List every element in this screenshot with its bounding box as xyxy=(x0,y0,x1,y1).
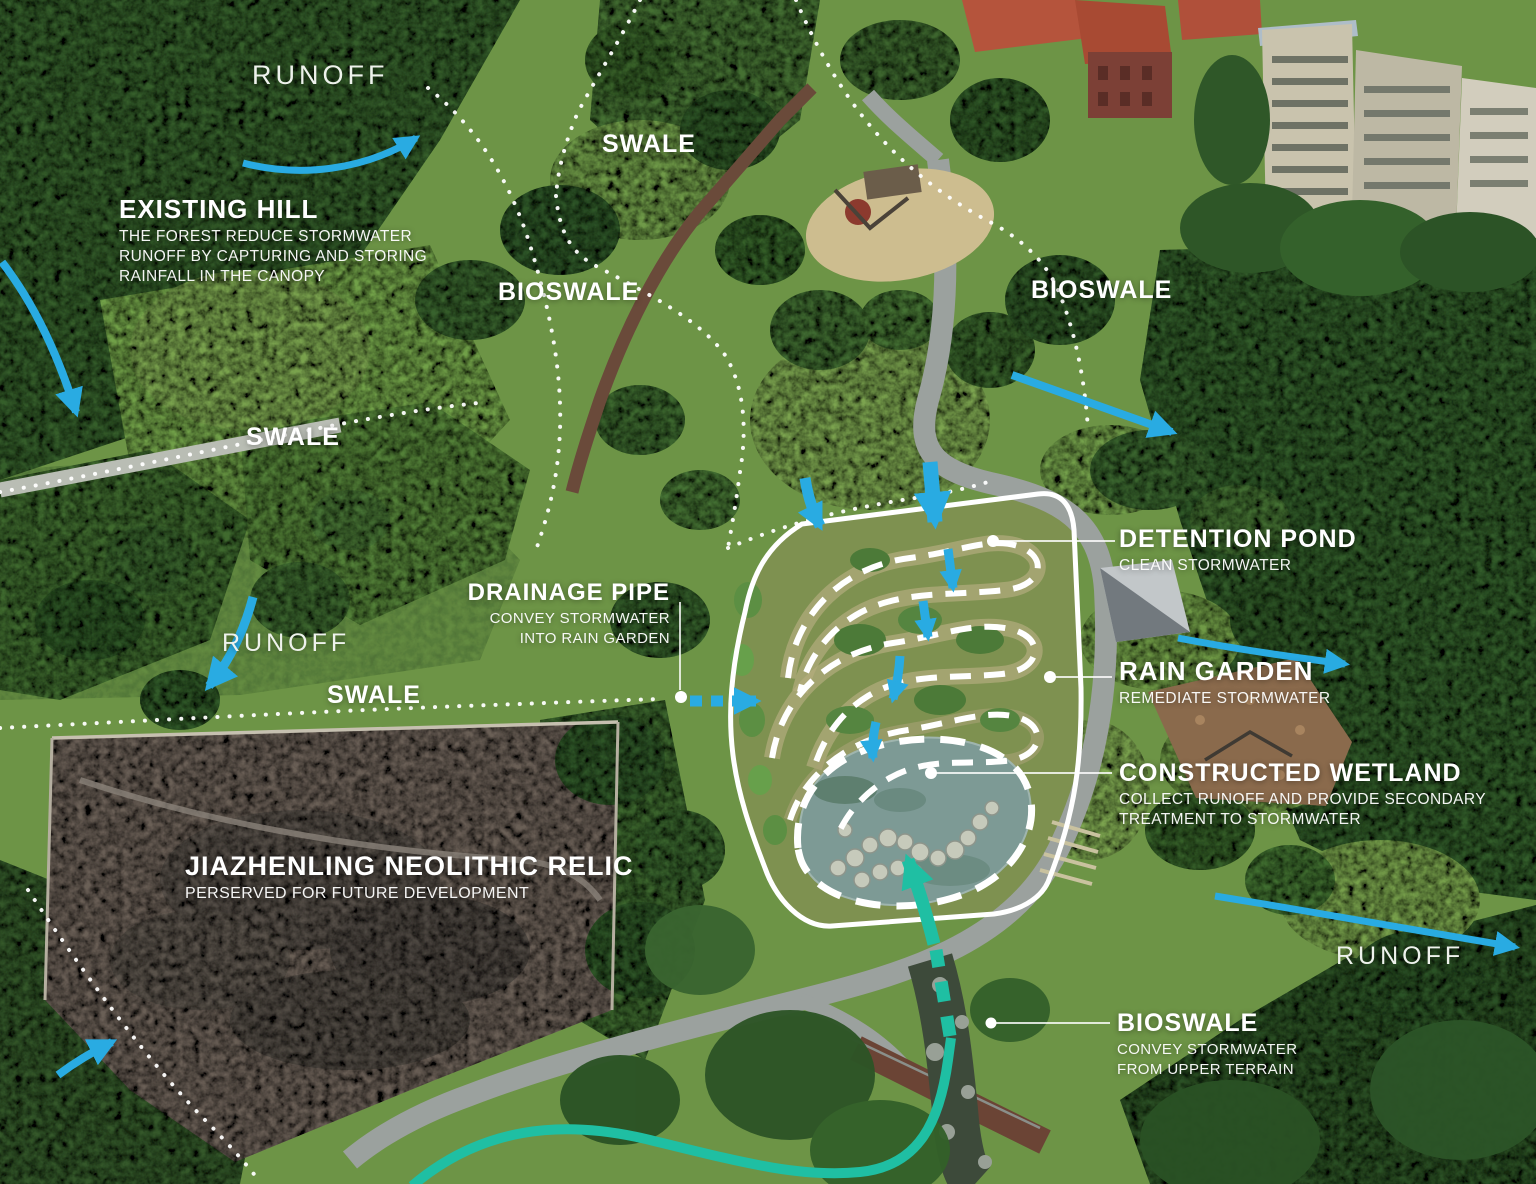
infiltration-arrow-5 xyxy=(893,656,900,699)
label-jiazhenling-relic: JIAZHENLING NEOLITHIC RELIC PERSERVED FO… xyxy=(185,852,634,904)
runoff-arrow-left-slope xyxy=(2,262,76,412)
label-rain-garden: RAIN GARDEN REMEDIATE STORMWATER xyxy=(1119,658,1331,709)
label-subline: CONVEY STORMWATER xyxy=(420,609,670,629)
label-subline: RUNOFF BY CAPTURING AND STORING xyxy=(119,247,427,267)
label-runoff-mid-left: RUNOFF xyxy=(222,629,350,658)
label-constructed-wetland: CONSTRUCTED WETLAND COLLECT RUNOFF AND P… xyxy=(1119,760,1486,830)
label-subline: INTO RAIN GARDEN xyxy=(420,629,670,649)
label-title: BIOSWALE xyxy=(1117,1010,1297,1036)
label-title: CONSTRUCTED WETLAND xyxy=(1119,760,1486,786)
label-subline: REMEDIATE STORMWATER xyxy=(1119,689,1331,709)
label-text: SWALE xyxy=(327,681,421,709)
label-title: DRAINAGE PIPE xyxy=(420,580,670,605)
label-swale-mid: SWALE xyxy=(246,424,340,450)
bioswale-arrow-right xyxy=(1012,375,1172,432)
bioswale-stream-curve xyxy=(412,1038,951,1184)
teal-bioswale-arrows xyxy=(412,860,951,1184)
label-subline: RAINFALL IN THE CANOPY xyxy=(119,267,427,287)
label-bioswale-right: BIOSWALE xyxy=(1031,277,1172,303)
label-subline: CLEAN STORMWATER xyxy=(1119,556,1357,576)
label-text: RUNOFF xyxy=(222,629,350,657)
bioswale-arrow-shaft xyxy=(936,950,950,1036)
infiltration-arrow-2 xyxy=(930,462,935,522)
dotted-line-southwest xyxy=(28,890,260,1182)
label-text: SWALE xyxy=(602,130,696,158)
label-text: RUNOFF xyxy=(252,60,388,90)
label-text: RUNOFF xyxy=(1336,942,1464,970)
runoff-arrow-top-left xyxy=(243,138,416,170)
leader-dot-rain-garden xyxy=(1044,671,1056,683)
label-title: DETENTION POND xyxy=(1119,526,1357,552)
runoff-arrow-bottom-right xyxy=(1215,896,1515,947)
infiltration-arrow-4 xyxy=(923,601,928,637)
label-subline: COLLECT RUNOFF AND PROVIDE SECONDARY xyxy=(1119,790,1486,810)
label-drainage-pipe: DRAINAGE PIPE CONVEY STORMWATER INTO RAI… xyxy=(420,580,670,649)
label-runoff-top-left: RUNOFF xyxy=(252,60,388,91)
label-bioswale-bottom: BIOSWALE CONVEY STORMWATER FROM UPPER TE… xyxy=(1117,1010,1297,1080)
annotated-aerial-site-diagram: RUNOFF SWALE EXISTING HILL THE FOREST RE… xyxy=(0,0,1536,1184)
infiltration-arrow-6 xyxy=(873,722,876,758)
label-runoff-bottom-right: RUNOFF xyxy=(1336,942,1464,971)
dotted-line-boardwalk-west xyxy=(428,88,560,550)
leader-dot-constructed-wetland xyxy=(925,767,937,779)
label-text: BIOSWALE xyxy=(498,278,639,306)
label-subline: FROM UPPER TERRAIN xyxy=(1117,1060,1297,1080)
label-subline: PERSERVED FOR FUTURE DEVELOPMENT xyxy=(185,884,634,904)
label-text: BIOSWALE xyxy=(1031,276,1172,304)
dotted-line-swale-mid xyxy=(0,403,478,492)
label-existing-hill: EXISTING HILL THE FOREST REDUCE STORMWAT… xyxy=(119,196,427,287)
label-swale-lower: SWALE xyxy=(327,682,421,708)
runoff-arrow-bottom-left xyxy=(58,1042,112,1075)
label-subline: TREATMENT TO STORMWATER xyxy=(1119,810,1486,830)
label-title: JIAZHENLING NEOLITHIC RELIC xyxy=(185,852,634,880)
annotation-layer xyxy=(0,0,1536,1184)
label-title: RAIN GARDEN xyxy=(1119,658,1331,685)
label-text: SWALE xyxy=(246,423,340,451)
infiltration-arrow-3 xyxy=(948,549,953,588)
leader-dot-drainage-pipe xyxy=(675,691,687,703)
dotted-line-bioswale-left xyxy=(556,196,744,548)
leader-lines xyxy=(675,535,1115,1029)
leader-dot-detention-pond xyxy=(987,535,999,547)
label-subline: THE FOREST REDUCE STORMWATER xyxy=(119,227,427,247)
dotted-line-bioswale-right xyxy=(796,0,1088,430)
leader-dot-bioswale-bottom xyxy=(986,1018,997,1029)
label-subline: CONVEY STORMWATER xyxy=(1117,1040,1297,1060)
label-bioswale-left: BIOSWALE xyxy=(498,279,639,305)
dotted-line-swale-top xyxy=(556,0,640,196)
label-detention-pond: DETENTION POND CLEAN STORMWATER xyxy=(1119,526,1357,576)
label-title: EXISTING HILL xyxy=(119,196,427,223)
label-swale-top: SWALE xyxy=(602,131,696,157)
